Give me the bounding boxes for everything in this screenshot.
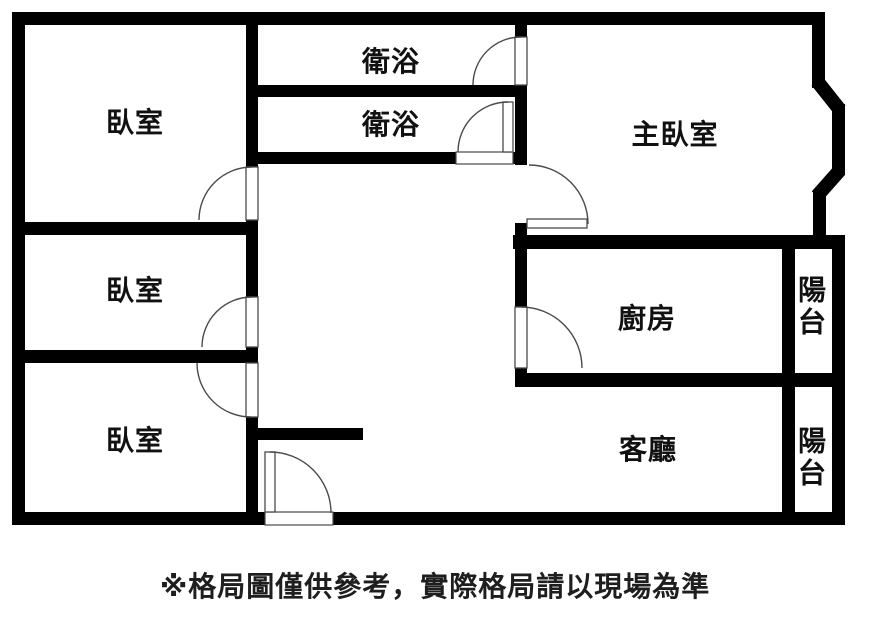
room-label-bathroom-2: 衛浴 <box>362 111 420 139</box>
room-label-balcony-2: 陽台 <box>796 426 824 490</box>
wall-bay-right <box>832 104 845 175</box>
door-arc-bedroom-2 <box>202 297 252 347</box>
door-leaf-bedroom-2 <box>246 297 258 347</box>
room-label-bedroom-3: 臥室 <box>106 427 164 455</box>
room-label-bedroom-2: 臥室 <box>106 277 164 305</box>
wall-bathroom-divider <box>258 85 515 97</box>
room-label-living-room: 客廳 <box>619 436 677 464</box>
wall-bedroom1-bottom <box>12 222 258 235</box>
door-leaf-bathroom-1 <box>515 37 527 85</box>
door-arc-master-bedroom <box>529 165 588 224</box>
wall-bedrooms-right-a <box>246 12 258 167</box>
wall-bedroom2-bottom <box>12 350 258 363</box>
door-leaf-bedroom-3 <box>246 363 258 417</box>
door-arc-bedroom-3 <box>197 363 251 417</box>
door-arc-bedroom-1 <box>199 167 252 220</box>
room-label-balcony-1: 陽台 <box>796 275 824 339</box>
wall-balcony-left <box>782 249 795 512</box>
wall-outer-top <box>12 12 825 25</box>
wall-central-c <box>515 223 527 307</box>
room-label-bathroom-1: 衛浴 <box>362 48 420 76</box>
room-label-bedroom-1: 臥室 <box>106 109 164 137</box>
door-openings <box>265 152 513 525</box>
wall-masterbedroom-bottom <box>513 235 845 249</box>
door-arc-bathroom-1 <box>473 37 521 85</box>
door-arc-kitchen <box>521 307 582 368</box>
room-label-kitchen: 廚房 <box>618 305 676 333</box>
disclaimer-text: ※格局圖僅供參考，實際格局請以現場為準 <box>160 571 710 603</box>
wall-kitchen-living-divider <box>515 373 845 387</box>
floorplan-page: 臥室 衛浴 衛浴 主臥室 臥室 廚房 陽台 臥室 客廳 陽台 ※格局圖僅供參考，… <box>0 0 889 620</box>
door-arc-entrance <box>270 452 331 513</box>
wall-outer-left <box>12 12 25 525</box>
door-leaf-entrance <box>265 452 275 512</box>
wall-outer-right-mid <box>813 190 826 238</box>
door-arc-bathroom-2 <box>458 102 508 152</box>
wall-outer-bottom <box>12 512 845 525</box>
door-leaf-bedroom-1 <box>246 167 258 220</box>
opening-entrance <box>265 512 333 525</box>
floorplan-drawing <box>0 0 889 620</box>
room-label-master-bedroom: 主臥室 <box>631 121 718 149</box>
opening-bathroom-2 <box>456 152 513 164</box>
wall-outer-right-upper <box>812 12 825 88</box>
wall-central-a <box>515 12 527 37</box>
door-leaf-master-bedroom <box>527 219 587 228</box>
door-leaf-kitchen <box>515 307 527 368</box>
wall-entry-stub <box>252 428 363 440</box>
wall-central-b <box>515 85 527 165</box>
door-leaf-bathroom-2 <box>503 102 513 152</box>
